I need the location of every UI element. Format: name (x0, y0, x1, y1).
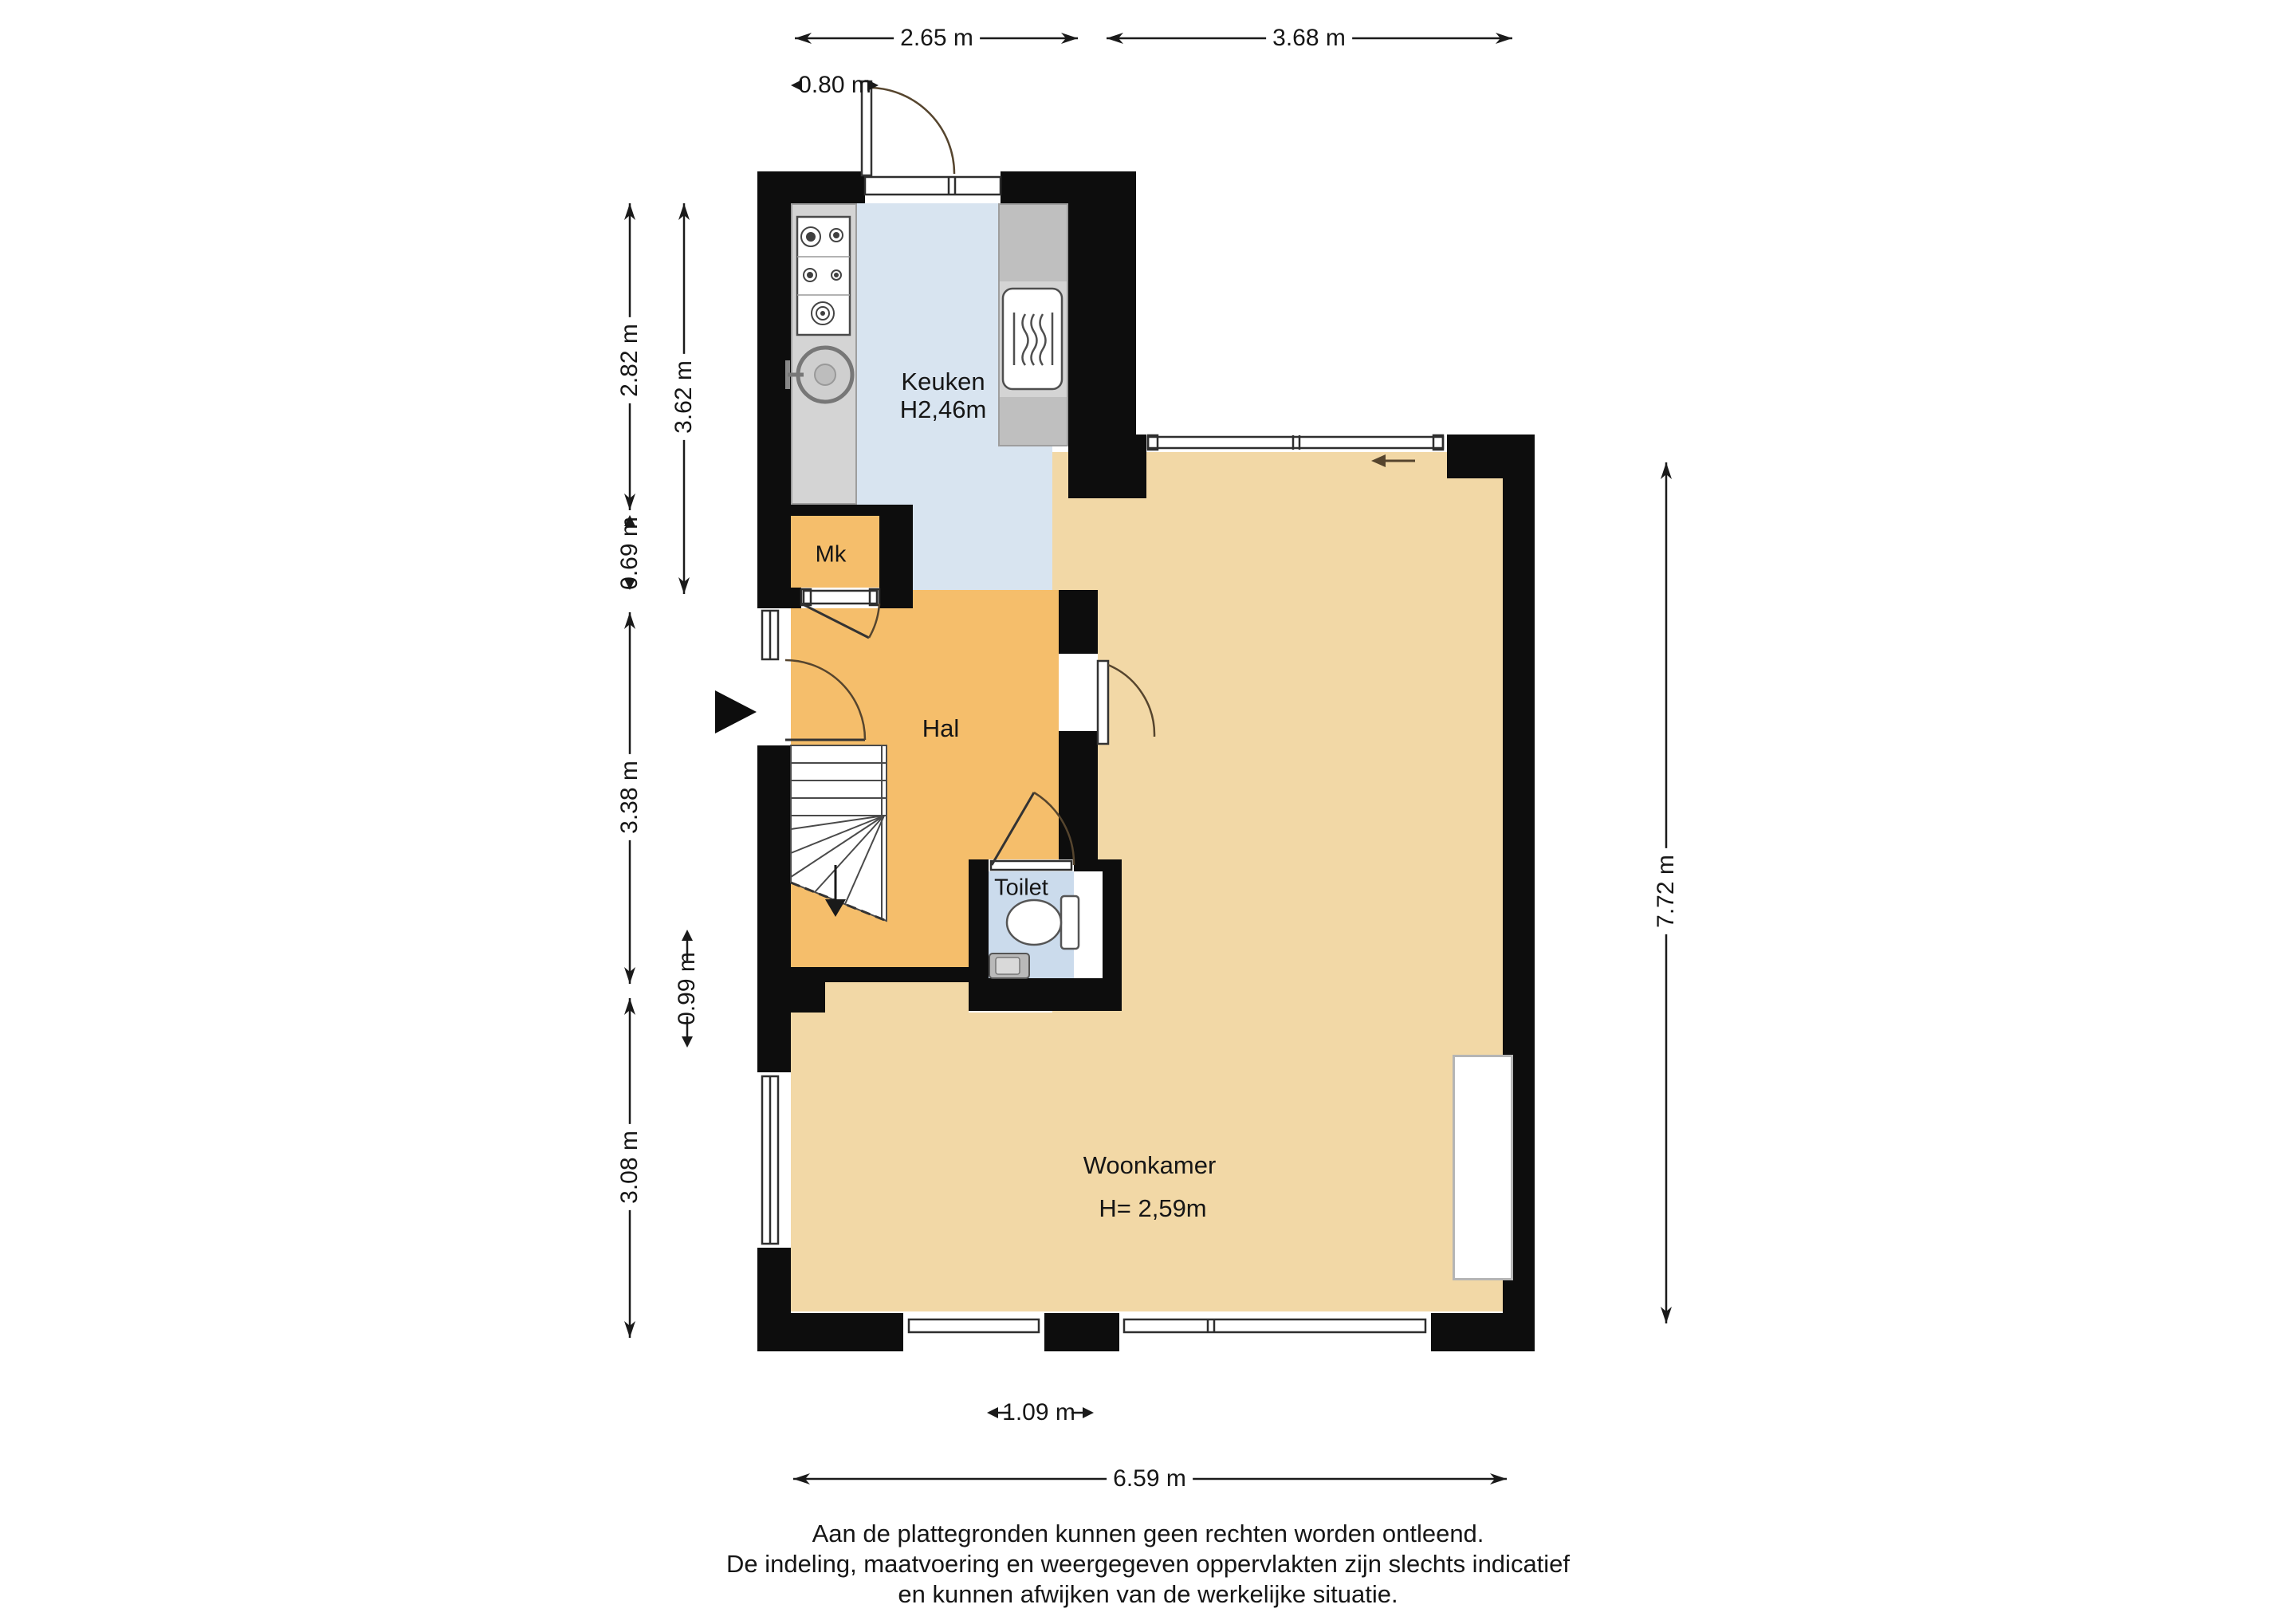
wall-bottom-middle (1044, 1313, 1119, 1351)
dim-left-kitchen-inner: 3.62 m (670, 354, 698, 440)
dim-left-livingroom: 3.08 m (616, 1124, 643, 1210)
toilet-door-opening (989, 859, 1074, 871)
keuken-height-label: H2,46m (900, 395, 987, 424)
wall-hal-bottom (791, 967, 969, 982)
keuken-label: Keuken (901, 368, 985, 396)
wall-bottom-left (759, 1313, 903, 1351)
kitchen-counter-left (791, 203, 857, 505)
disclaimer-line-2: De indeling, maatvoering en weergegeven … (726, 1550, 1570, 1579)
mk-door-opening (801, 588, 879, 608)
wall-mk-door-jamb (791, 588, 801, 608)
wall-hal-right-upper (1059, 590, 1098, 654)
wall-kitchen-se-block (1068, 435, 1146, 498)
dim-right-total: 7.72 m (1653, 848, 1680, 934)
mk-label: Mk (816, 542, 847, 568)
wall-mk-right (879, 505, 913, 608)
toilet-shaft (1074, 871, 1103, 978)
kitchen-counter-right-lower (1000, 397, 1067, 445)
back-door-arc (871, 88, 954, 174)
front-door-opening (759, 662, 783, 745)
wall-bottom-right (1431, 1313, 1535, 1351)
dim-left-hal: 3.38 m (616, 754, 643, 840)
woonkamer-label: Woonkamer (1083, 1151, 1217, 1180)
dim-bottom-window: 1.09 m (996, 1399, 1082, 1426)
dim-bottom-total: 6.59 m (1107, 1465, 1193, 1492)
bottom-window-small (903, 1313, 1044, 1351)
disclaimer-line-3: en kunnen afwijken van de werkelijke sit… (898, 1580, 1398, 1609)
wall-left-upper (757, 171, 791, 608)
kitchen-counter-right-upper (1000, 205, 1067, 281)
dim-back-door: 0.80 m (792, 72, 878, 99)
floorplan: 2.65 m 3.68 m 0.80 m 2.82 m 3.62 m 0.69 … (0, 0, 2296, 1624)
wall-left-middle (757, 745, 791, 1072)
back-door-opening (865, 171, 953, 203)
livingroom-left-window (759, 1072, 783, 1248)
wall-hal-bottom-corner (791, 982, 825, 1013)
bottom-window-large (1119, 1313, 1431, 1351)
toilet-label: Toilet (994, 875, 1048, 902)
hal-label: Hal (922, 714, 960, 743)
woonkamer-floor-strip (825, 982, 969, 1013)
wall-ne-corner (1447, 435, 1535, 478)
dim-left-mk: 0.69 m (616, 510, 643, 596)
kitchen-top-window (953, 171, 1001, 203)
dim-left-kitchen: 2.82 m (616, 317, 643, 403)
woonkamer-height-label: H= 2,59m (1099, 1194, 1206, 1223)
dim-top-livingroom: 3.68 m (1266, 25, 1352, 52)
dim-top-kitchen: 2.65 m (894, 25, 980, 52)
wall-hal-right-lower (1059, 731, 1098, 859)
entrance-arrow (715, 690, 757, 733)
dim-left-stairs: 0.99 m (674, 946, 701, 1032)
wall-kitchen-right (1068, 171, 1136, 435)
disclaimer-line-1: Aan de plattegronden kunnen geen rechten… (812, 1520, 1484, 1548)
hal-woonkamer-door-opening (1059, 654, 1098, 731)
livingroom-wall-niche (1453, 1055, 1513, 1280)
sidelight-window (759, 608, 783, 662)
livingroom-top-window (1146, 433, 1447, 452)
